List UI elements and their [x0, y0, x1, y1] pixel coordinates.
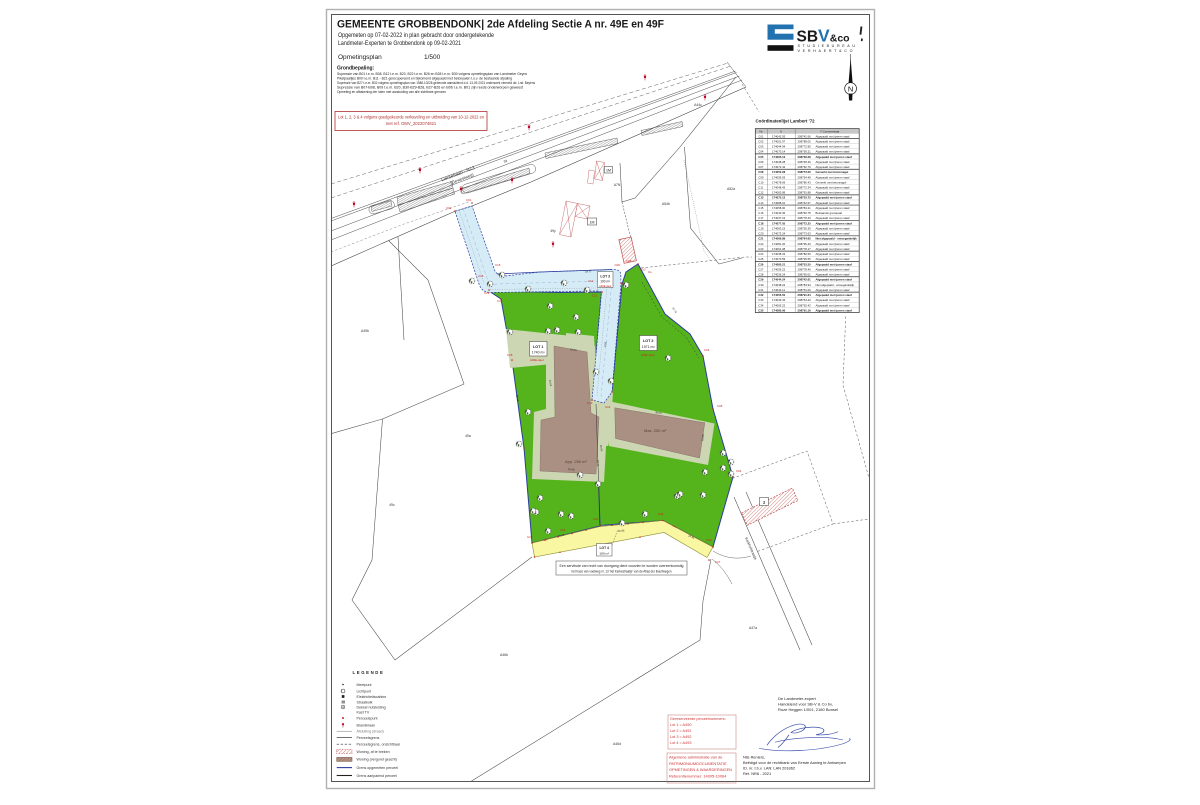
svg-text:C24174038.34208780.60Afgepaald: C24174038.34208780.60Afgepaald met ijzer… — [758, 252, 849, 256]
svg-text:Nils Reniers,: Nils Reniers, — [743, 755, 765, 760]
svg-text:Opmetingsplan: Opmetingsplan — [338, 54, 382, 61]
svg-text:A49E-deel: A49E-deel — [530, 358, 544, 362]
svg-text:C25174070.59208799.55Afgepaald: C25174070.59208799.55Afgepaald met ijzer… — [758, 257, 849, 261]
svg-text:OPMETINGEN & WAARDERINGEN: OPMETINGEN & WAARDERINGEN — [669, 767, 732, 772]
svg-text:Grens aanpalend perceel: Grens aanpalend perceel — [357, 774, 398, 778]
svg-text:Roze Heggen 1/001, 2180 Bonsel: Roze Heggen 1/001, 2180 Bonsel — [778, 707, 838, 712]
svg-text:C16: C16 — [478, 274, 484, 278]
svg-text:C20174073.24208773.63Afgepaald: C20174073.24208773.63Afgepaald met ijzer… — [758, 232, 849, 236]
svg-text:C21: C21 — [484, 291, 490, 295]
svg-text:Brandkraan: Brandkraan — [357, 723, 376, 727]
svg-text:Perceelspunt: Perceelspunt — [357, 716, 378, 720]
svg-text:C21174066.89208764.65Niet afge: C21174066.89208764.65Niet afgepaald - on… — [758, 237, 857, 241]
svg-text:49a: 49a — [465, 434, 471, 438]
svg-text:Supressie van B07-B08, B09 t.e: Supressie van B07-B08, B09 t.e.m. B20, B… — [337, 86, 524, 90]
svg-text:C18: C18 — [507, 353, 513, 357]
svg-text:Perceelsgrens, onzichtbaar: Perceelsgrens, onzichtbaar — [357, 743, 401, 747]
svg-text:C19174083.15208755.39Afgepaald: C19174083.15208755.39Afgepaald met ijzer… — [758, 226, 849, 230]
svg-text:GEMEENTE GROBBENDONK| 2de Afde: GEMEENTE GROBBENDONK| 2de Afdeling Secti… — [337, 19, 664, 31]
svg-text:Piketpaaltjes B09 t.e.m. B11 -: Piketpaaltjes B09 t.e.m. B11 - B21 gerec… — [337, 76, 512, 80]
svg-text:Landmeter-Experten te Grobbend: Landmeter-Experten te Grobbendonk op 09-… — [338, 40, 461, 47]
svg-text:Supressie van B01 t.e.m. B08,: Supressie van B01 t.e.m. B08, B12 t.e.m.… — [337, 72, 527, 76]
svg-text:A46b: A46b — [500, 653, 508, 657]
svg-text:C07174072.42208762.79Afgepaald: C07174072.42208762.79Afgepaald met ijzer… — [758, 165, 849, 169]
svg-text:C02: C02 — [446, 206, 452, 210]
svg-text:C18174077.05208772.25Afgepaald: C18174077.05208772.25Afgepaald met ijzer… — [758, 221, 851, 225]
svg-text:Referentienummer: 14005-10064: Referentienummer: 14005-10064 — [669, 773, 727, 778]
svg-text:A49F-deel: A49F-deel — [641, 353, 655, 357]
svg-text:Meetpunt: Meetpunt — [357, 683, 372, 687]
svg-text:PATRIMONIUMDOCUMENTATIE: PATRIMONIUMDOCUMENTATIE — [669, 761, 727, 766]
svg-text:C12174063.89208791.88Afgepaald: C12174063.89208791.88Afgepaald met ijzer… — [758, 191, 849, 195]
svg-text:1740 m²: 1740 m² — [532, 351, 546, 355]
svg-text:C05174065.13208739.08Afgepaald: C05174065.13208739.08Afgepaald met ijzer… — [758, 155, 851, 159]
svg-text:C06: C06 — [704, 348, 710, 352]
svg-text:24.77: 24.77 — [585, 269, 592, 273]
svg-text:31.71: 31.71 — [596, 460, 600, 467]
svg-text:Max. 250 m²: Max. 250 m² — [644, 428, 667, 433]
svg-text:ID. nr. t.b.v. LAN: LAN 201862: ID. nr. t.b.v. LAN: LAN 201862 — [743, 766, 795, 771]
svg-text:Algemene administratie van de: Algemene administratie van de — [669, 755, 722, 760]
svg-text:C12: C12 — [588, 279, 594, 283]
svg-text:Inv: Inv — [648, 270, 652, 274]
svg-text:C22: C22 — [527, 535, 533, 539]
svg-text:C03174044.94208772.80Afgepaald: C03174044.94208772.80Afgepaald met ijzer… — [758, 145, 849, 149]
svg-text:C15174058.00208784.21Afgepaald: C15174058.00208784.21Afgepaald met ijzer… — [758, 206, 849, 210]
svg-text:180 m²: 180 m² — [599, 551, 609, 555]
svg-text:Coördinatenlijst Lambert '72: Coördinatenlijst Lambert '72 — [756, 119, 816, 124]
svg-text:A49b: A49b — [361, 329, 369, 333]
svg-text:Afsluiting (draad): Afsluiting (draad) — [357, 730, 384, 734]
svg-text:Woning, af te breken: Woning, af te breken — [357, 750, 390, 754]
svg-text:3,50: 3,50 — [603, 341, 608, 347]
svg-text:C13: C13 — [587, 401, 593, 405]
svg-text:C34174065.22208792.42Afgepaald: C34174065.22208792.42Afgepaald met ijzer… — [758, 303, 849, 307]
svg-text:Kast TV: Kast TV — [357, 710, 370, 714]
svg-text:A46d: A46d — [613, 742, 621, 746]
svg-text:C30174038.24208784.94Niet afge: C30174038.24208784.94Niet afgepaald - on… — [758, 283, 854, 287]
svg-text:C01174042.93208742.66Afgepaald: C01174042.93208742.66Afgepaald met ijzer… — [758, 134, 849, 138]
svg-text:C33174039.43208764.20Afgepaald: C33174039.43208764.20Afgepaald met ijzer… — [758, 298, 849, 302]
svg-text:C24: C24 — [593, 517, 599, 521]
svg-text:Grens opgemeten perceel: Grens opgemeten perceel — [357, 766, 399, 770]
svg-text:A52a: A52a — [727, 187, 735, 191]
svg-text:C23174061.08208778.17Afgepaald: C23174061.08208778.17Afgepaald met ijzer… — [758, 247, 849, 251]
svg-text:De Landmeter-expert: De Landmeter-expert — [778, 696, 817, 701]
svg-text:C29174044.24208742.61Afgepaald: C29174044.24208742.61Afgepaald met ijzer… — [758, 278, 851, 282]
svg-text:LOT 2: LOT 2 — [643, 339, 653, 343]
svg-text:C06174038.28208748.39Afgepaald: C06174038.28208748.39Afgepaald met ijzer… — [758, 160, 849, 164]
svg-text:Grondbepaling:: Grondbepaling: — [337, 66, 375, 72]
svg-text:C04174070.14208759.21Afgepaald: C04174070.14208759.21Afgepaald met ijzer… — [758, 150, 849, 154]
svg-text:Straatkolk: Straatkolk — [357, 700, 373, 704]
svg-text:C27174056.22208778.46Afgepaald: C27174056.22208778.46Afgepaald met ijzer… — [758, 267, 849, 271]
svg-text:C26174080.21208753.50Afgepaald: C26174080.21208753.50Afgepaald met ijzer… — [758, 262, 851, 266]
svg-text:C27: C27 — [715, 560, 721, 564]
svg-text:Supressie van B27 t.e.m. B32 v: Supressie van B27 t.e.m. B32 volgens opm… — [337, 81, 535, 85]
svg-text:C28174036.24208765.01Afgepaald: C28174036.24208765.01Afgepaald met ijzer… — [758, 273, 849, 277]
svg-text:Lot 4 = A493: Lot 4 = A493 — [670, 741, 691, 745]
svg-text:A44c: A44c — [694, 103, 702, 107]
svg-text:49y: 49y — [550, 229, 556, 233]
svg-text:met ref. OMV_2022074821: met ref. OMV_2022074821 — [386, 121, 437, 126]
svg-text:15.95: 15.95 — [618, 528, 625, 533]
svg-text:Beëdigd voor de rechtbank van: Beëdigd voor de rechtbank van Eerste Aan… — [743, 760, 846, 765]
svg-text:Opgemeten op 07-02-2022 in pl: Opgemeten op 07-02-2022 in plan gebracht… — [338, 32, 494, 39]
svg-text:C22174081.20208796.40Afgepaald: C22174081.20208796.40Afgepaald met ijzer… — [758, 242, 849, 246]
svg-text:C17174037.16208778.43Afgepaald: C17174037.16208778.43Afgepaald met ijzer… — [758, 216, 849, 220]
svg-text:C08174052.28208773.06Gemerkt m: C08174052.28208773.06Gemerkt met betonna… — [758, 170, 848, 174]
svg-text:LEGENDE: LEGENDE — [353, 670, 385, 675]
svg-text:Lot 3 = A492: Lot 3 = A492 — [670, 735, 691, 739]
svg-text:10.00: 10.00 — [568, 467, 575, 472]
svg-text:App. 250 m²: App. 250 m² — [565, 459, 587, 464]
svg-text:1M: 1M — [606, 169, 611, 173]
svg-text:LOT 4: LOT 4 — [600, 546, 610, 550]
svg-text:C17: C17 — [497, 299, 503, 303]
svg-text:Elektriciteitscabine: Elektriciteitscabine — [357, 695, 387, 699]
svg-text:C08: C08 — [626, 259, 632, 263]
svg-text:1971 m²: 1971 m² — [642, 345, 656, 349]
svg-text:49c: 49c — [389, 503, 395, 507]
svg-text:LOT 3: LOT 3 — [600, 274, 610, 278]
svg-text:C31174042.11208751.09Afgepaald: C31174042.11208751.09Afgepaald met ijzer… — [758, 288, 849, 292]
svg-text:190 m²: 190 m² — [600, 280, 610, 284]
svg-text:C26: C26 — [706, 538, 712, 542]
svg-text:Gereserveerde perceelnummers:: Gereserveerde perceelnummers: — [670, 717, 726, 721]
svg-text:A49E-deel: A49E-deel — [599, 284, 612, 288]
svg-text:Lot 2 = A491: Lot 2 = A491 — [670, 729, 691, 733]
svg-text:A54b: A54b — [662, 202, 670, 206]
svg-text:C01: C01 — [466, 198, 472, 202]
svg-text:C14: C14 — [605, 405, 611, 409]
svg-text:Opmeting en afbakening der lot: Opmeting en afbakening der loten met aan… — [337, 90, 446, 94]
svg-text:1M: 1M — [590, 220, 595, 224]
svg-text:Handelend voor SB-V & Co bv,: Handelend voor SB-V & Co bv, — [778, 702, 833, 707]
svg-text:C15: C15 — [495, 263, 501, 267]
svg-text:C25: C25 — [658, 512, 664, 516]
svg-text:A47a: A47a — [749, 626, 757, 630]
svg-text:Lot 1 = A490: Lot 1 = A490 — [670, 723, 691, 727]
svg-text:C10: C10 — [640, 268, 646, 272]
svg-text:C10174078.69208780.43Gemerkt m: C10174078.69208780.43Gemerkt met betonna… — [758, 180, 846, 184]
svg-text:Een servitude van recht van do: Een servitude van recht van doorgang die… — [560, 564, 684, 568]
svg-text:LOT 1: LOT 1 — [533, 345, 543, 349]
svg-text:C09174059.93208754.48Afgepaald: C09174059.93208754.48Afgepaald met ijzer… — [758, 175, 849, 179]
svg-text:Perceelsgrens: Perceelsgrens — [357, 736, 380, 740]
svg-text:C05: C05 — [717, 404, 723, 408]
svg-text:C13174075.12208753.72Afgepaald: C13174075.12208753.72Afgepaald met ijzer… — [758, 196, 851, 200]
svg-text:C14174088.91208742.67Afgepaald: C14174088.91208742.67Afgepaald met ijzer… — [758, 201, 849, 205]
svg-text:Lichtpunt: Lichtpunt — [357, 689, 372, 693]
svg-text:C11: C11 — [592, 294, 597, 298]
svg-text:het tracé van voetweg nr. 13 ': het tracé van voetweg nr. 13 'het Kerkes… — [572, 570, 672, 574]
svg-text:C09: C09 — [615, 263, 621, 267]
svg-text:C02174051.97208788.05Afgepaald: C02174051.97208788.05Afgepaald met ijzer… — [758, 139, 849, 143]
svg-text:Lot 1, 2, 3 & 4 volgens goedge: Lot 1, 2, 3 & 4 volgens goedgekeurde ver… — [338, 115, 485, 120]
svg-text:Woning (vergund geacht): Woning (vergund geacht) — [357, 758, 397, 762]
svg-text:N: N — [848, 85, 853, 94]
svg-text:A7N: A7N — [614, 183, 621, 187]
svg-text:C04: C04 — [736, 469, 742, 473]
svg-text:1/500: 1/500 — [424, 54, 441, 61]
svg-text:Deksel nutsleiding: Deksel nutsleiding — [357, 705, 386, 709]
svg-text:C23: C23 — [560, 528, 566, 532]
svg-text:C35174080.06208791.16Afgepaald: C35174080.06208791.16Afgepaald met ijzer… — [758, 308, 851, 312]
svg-text:C32174056.50208791.64Afgepaald: C32174056.50208791.64Afgepaald met ijzer… — [758, 293, 851, 297]
svg-text:C11174048.43208772.34Afgepaald: C11174048.43208772.34Afgepaald met ijzer… — [758, 186, 849, 190]
svg-text:Ref. NR6 - 2021: Ref. NR6 - 2021 — [743, 771, 771, 776]
